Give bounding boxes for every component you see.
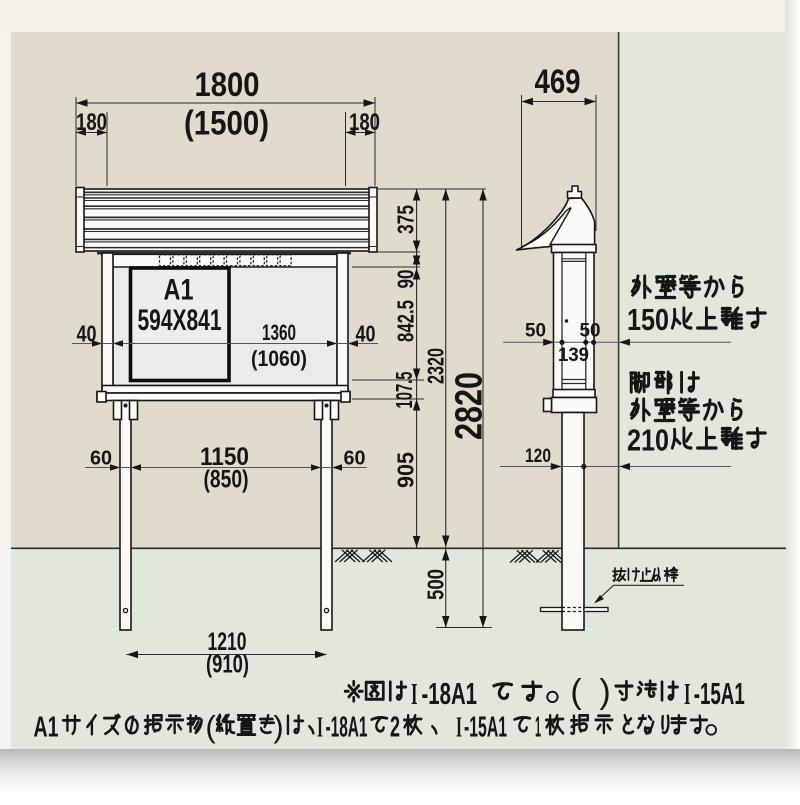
svg-text:2320: 2320 [423, 348, 449, 384]
svg-text:2: 2 [390, 712, 400, 744]
svg-text:500: 500 [423, 569, 449, 600]
svg-text:107.5: 107.5 [391, 371, 417, 408]
svg-text:I: I [411, 676, 418, 711]
svg-text:(1500): (1500) [184, 105, 269, 143]
svg-text:120: 120 [525, 445, 551, 467]
svg-text:(850): (850) [204, 466, 249, 494]
svg-text:40: 40 [356, 321, 376, 347]
svg-text:842.5: 842.5 [393, 300, 419, 342]
svg-text:180: 180 [76, 109, 107, 136]
svg-text:210: 210 [627, 424, 669, 458]
svg-text:1: 1 [535, 712, 541, 744]
svg-text:(910): (910) [206, 651, 249, 679]
svg-text:60: 60 [344, 448, 366, 470]
svg-text:150: 150 [627, 303, 669, 337]
svg-text:1800: 1800 [195, 66, 260, 104]
svg-text:40: 40 [77, 321, 97, 347]
svg-text:1360: 1360 [262, 320, 296, 345]
svg-text:375: 375 [393, 205, 419, 234]
svg-text:I: I [456, 712, 462, 744]
svg-text:-18A1: -18A1 [422, 676, 478, 711]
svg-text:-15A1: -15A1 [464, 712, 507, 744]
svg-text:905: 905 [393, 452, 419, 488]
svg-text:I: I [684, 676, 691, 711]
svg-text:A1: A1 [164, 274, 194, 307]
svg-text:(: ( [570, 673, 582, 711]
svg-text:180: 180 [349, 109, 380, 136]
svg-text:594X841: 594X841 [138, 304, 222, 337]
svg-text:): ) [599, 673, 610, 711]
svg-text:I: I [317, 712, 323, 744]
svg-text:-18A1: -18A1 [326, 712, 368, 744]
svg-text:A1: A1 [34, 712, 59, 744]
svg-text:469: 469 [535, 63, 581, 101]
svg-text:-15A1: -15A1 [694, 676, 745, 711]
svg-text:): ) [273, 709, 283, 744]
svg-text:90: 90 [393, 270, 419, 289]
svg-text:2820: 2820 [449, 372, 491, 440]
svg-text:139: 139 [558, 344, 589, 366]
svg-text:(: ( [205, 709, 216, 744]
svg-text:60: 60 [90, 448, 112, 470]
svg-text:50: 50 [580, 320, 601, 342]
svg-text:(1060): (1060) [251, 346, 307, 371]
svg-text:50: 50 [525, 320, 546, 342]
